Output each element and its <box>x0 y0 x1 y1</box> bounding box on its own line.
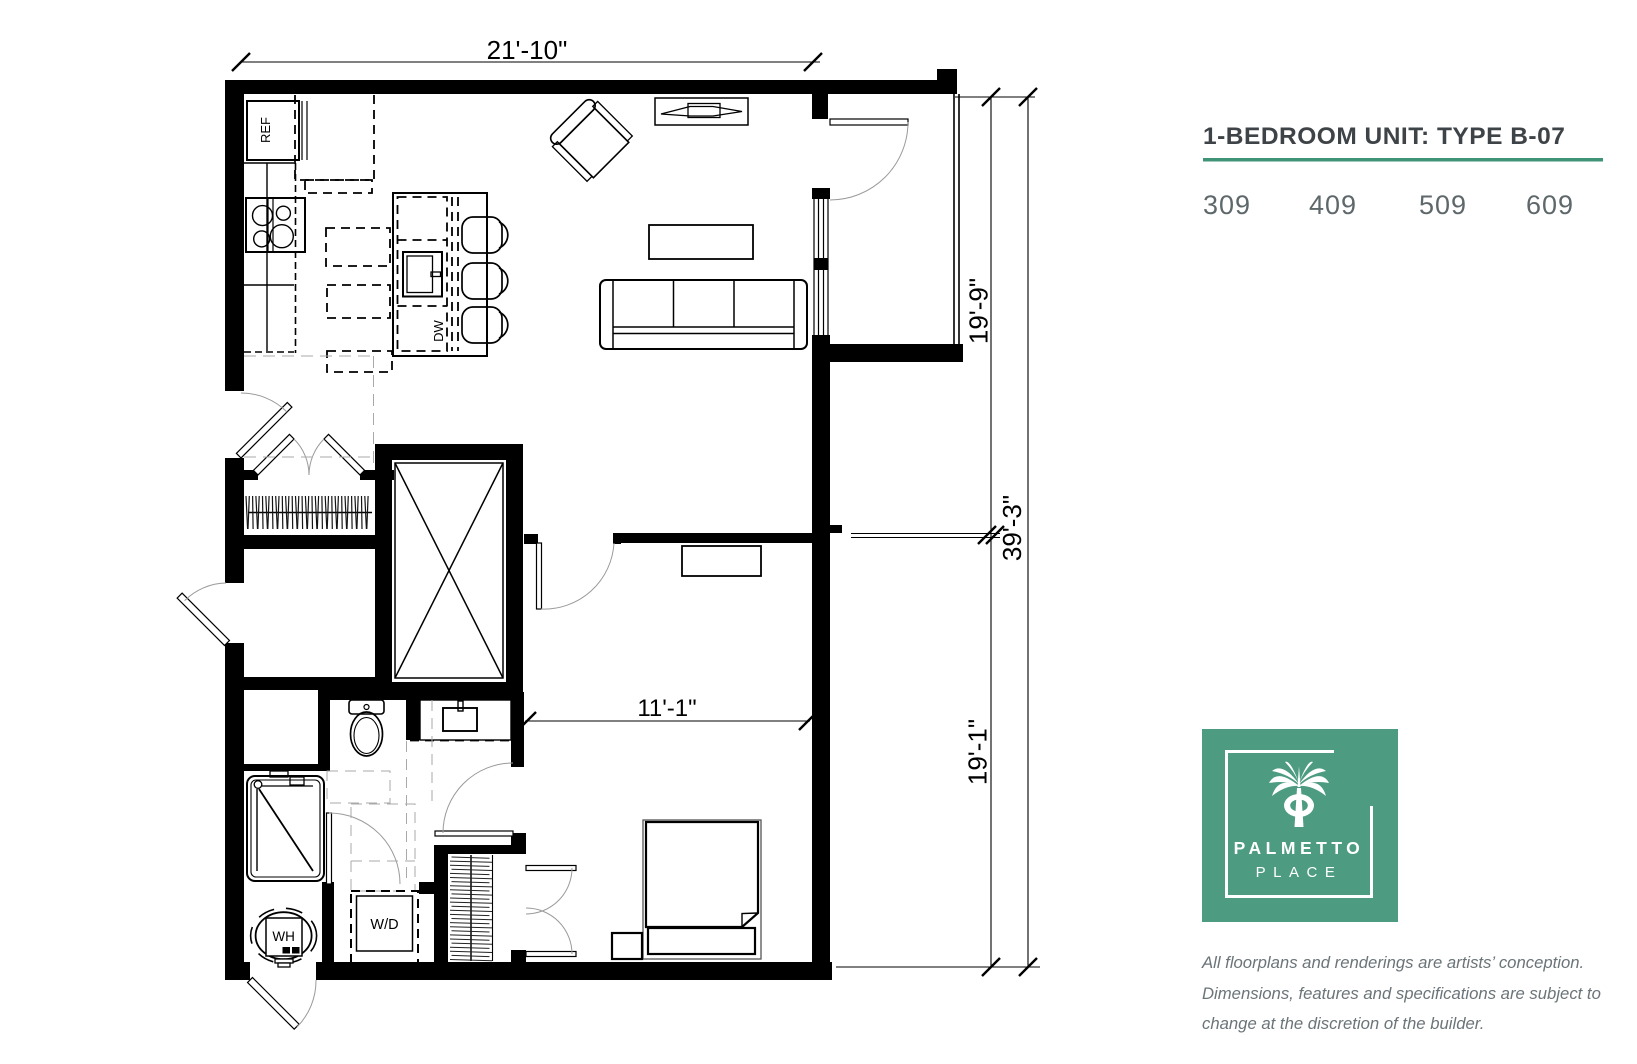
svg-text:609: 609 <box>1526 190 1574 220</box>
svg-text:W/D: W/D <box>370 917 398 933</box>
svg-text:309: 309 <box>1203 190 1251 220</box>
svg-text:21'-10": 21'-10" <box>487 35 568 65</box>
svg-text:DW: DW <box>431 319 446 341</box>
svg-text:1-BEDROOM UNIT: TYPE B-07: 1-BEDROOM UNIT: TYPE B-07 <box>1203 123 1565 150</box>
svg-text:11'-1": 11'-1" <box>637 695 696 722</box>
svg-text:Dimensions, features and speci: Dimensions, features and specifications … <box>1202 984 1601 1003</box>
svg-text:409: 409 <box>1309 190 1357 220</box>
svg-text:WH: WH <box>272 929 295 944</box>
svg-text:19'-1": 19'-1" <box>963 719 993 785</box>
svg-text:change at the discretion of th: change at the discretion of the builder. <box>1202 1014 1484 1033</box>
svg-text:All floorplans and renderings: All floorplans and renderings are artist… <box>1201 953 1584 972</box>
svg-text:509: 509 <box>1419 190 1467 220</box>
svg-text:REF: REF <box>258 117 273 143</box>
svg-text:PLACE: PLACE <box>1256 864 1343 881</box>
svg-text:19'-9": 19'-9" <box>964 278 994 344</box>
svg-text:PALMETTO: PALMETTO <box>1234 838 1365 858</box>
